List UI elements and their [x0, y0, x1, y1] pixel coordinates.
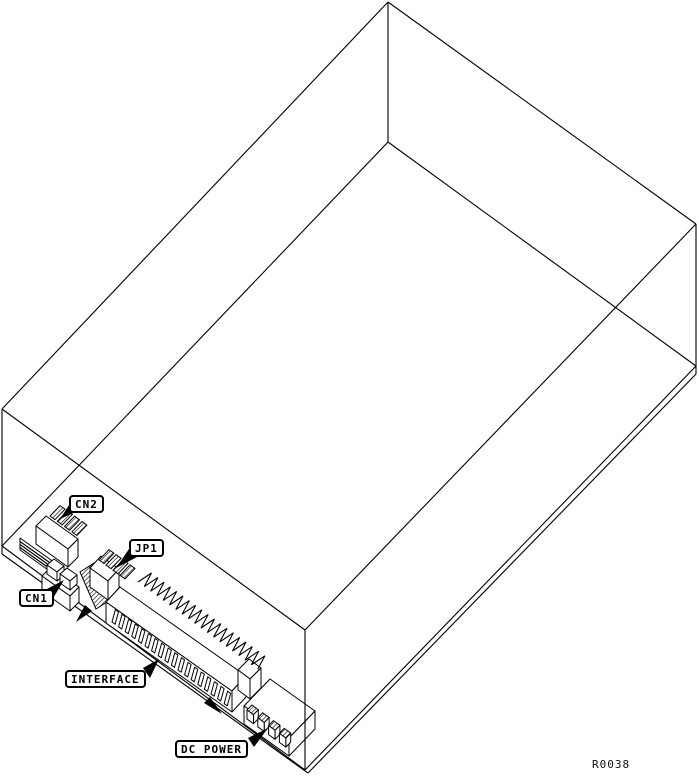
callout-cn1-label: CN1	[25, 592, 48, 605]
callout-jp1: JP1	[129, 539, 164, 557]
chassis-edge	[388, 2, 696, 224]
chassis-edge	[2, 2, 388, 409]
callout-cn2: CN2	[69, 495, 104, 513]
callout-cn1: CN1	[19, 589, 54, 607]
chassis-edge	[388, 142, 696, 366]
chassis-edge	[2, 142, 388, 546]
callout-interface-label: INTERFACE	[71, 673, 140, 686]
pcb-edge-right	[308, 374, 696, 773]
drive-isometric-figure: CN2 CN1 JP1 INTERFACE DC POWER R0038	[0, 0, 699, 782]
callout-interface: INTERFACE	[65, 670, 146, 688]
line-art-canvas	[0, 0, 699, 782]
callout-cn2-label: CN2	[75, 498, 98, 511]
chassis-wireframe	[2, 2, 696, 770]
callout-dc-power-label: DC POWER	[181, 743, 242, 756]
callout-dc-power: DC POWER	[175, 740, 248, 758]
callout-jp1-label: JP1	[135, 542, 158, 555]
figure-reference: R0038	[592, 758, 630, 771]
interface-connector	[106, 573, 265, 712]
pin1-arrow-left	[76, 605, 92, 622]
